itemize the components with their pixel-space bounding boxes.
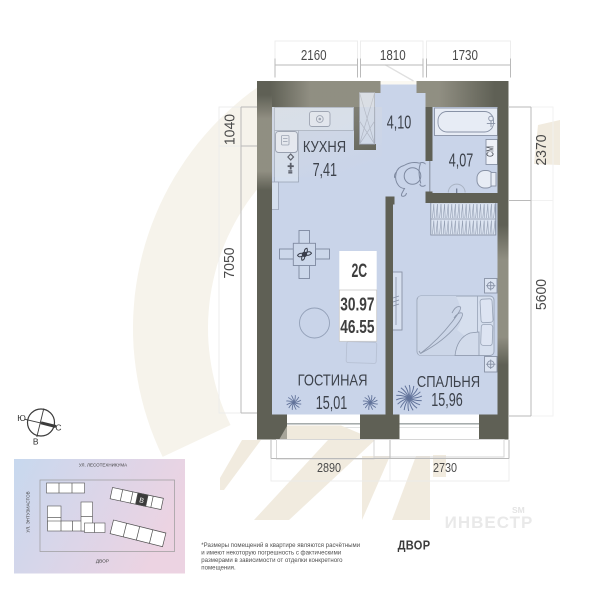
svg-text:*Размеры помещений в квартире: *Размеры помещений в квартире являются р… [201,542,360,549]
svg-text:и имеют некоторую погрешность: и имеют некоторую погрешность с фактичес… [201,550,341,557]
svg-text:помещения.: помещения. [201,565,236,572]
svg-text:КУХНЯ: КУХНЯ [303,139,346,157]
svg-text:ИНВЕСТР: ИНВЕСТР [445,513,534,532]
svg-text:46.55: 46.55 [340,317,374,337]
svg-text:УЛ. ЛЕСОТЕХНИКУМА: УЛ. ЛЕСОТЕХНИКУМА [79,463,127,468]
svg-text:ГОСТИНАЯ: ГОСТИНАЯ [298,372,368,390]
svg-text:2160: 2160 [301,47,327,63]
svg-text:1040: 1040 [222,114,238,145]
svg-text:С: С [55,423,61,433]
svg-text:2С: 2С [351,260,367,282]
svg-text:7050: 7050 [222,247,238,278]
svg-text:размерами в зависимости от отд: размерами в зависимости от отделки конкр… [201,557,343,564]
svg-text:УЛ. ЭНТУЗИАСТОВ: УЛ. ЭНТУЗИАСТОВ [26,491,31,532]
svg-text:ДВОР: ДВОР [96,559,109,565]
svg-text:СМ: СМ [484,146,496,157]
svg-text:ДВОР: ДВОР [398,538,431,553]
svg-text:SM: SM [512,505,525,515]
svg-text:1730: 1730 [452,47,478,63]
svg-text:15,96: 15,96 [431,391,463,411]
svg-text:В: В [33,437,39,447]
svg-text:1810: 1810 [380,47,406,63]
svg-text:2370: 2370 [534,134,550,165]
svg-text:4,07: 4,07 [449,151,473,171]
svg-text:30.97: 30.97 [340,294,374,314]
svg-text:Ю: Ю [17,413,26,423]
svg-text:15,01: 15,01 [316,394,348,414]
svg-text:2890: 2890 [317,460,341,475]
svg-text:2730: 2730 [433,460,457,475]
svg-text:4,10: 4,10 [387,113,412,133]
svg-text:СПАЛЬНЯ: СПАЛЬНЯ [417,374,480,392]
svg-text:7,41: 7,41 [313,161,338,181]
svg-text:5600: 5600 [534,279,550,310]
